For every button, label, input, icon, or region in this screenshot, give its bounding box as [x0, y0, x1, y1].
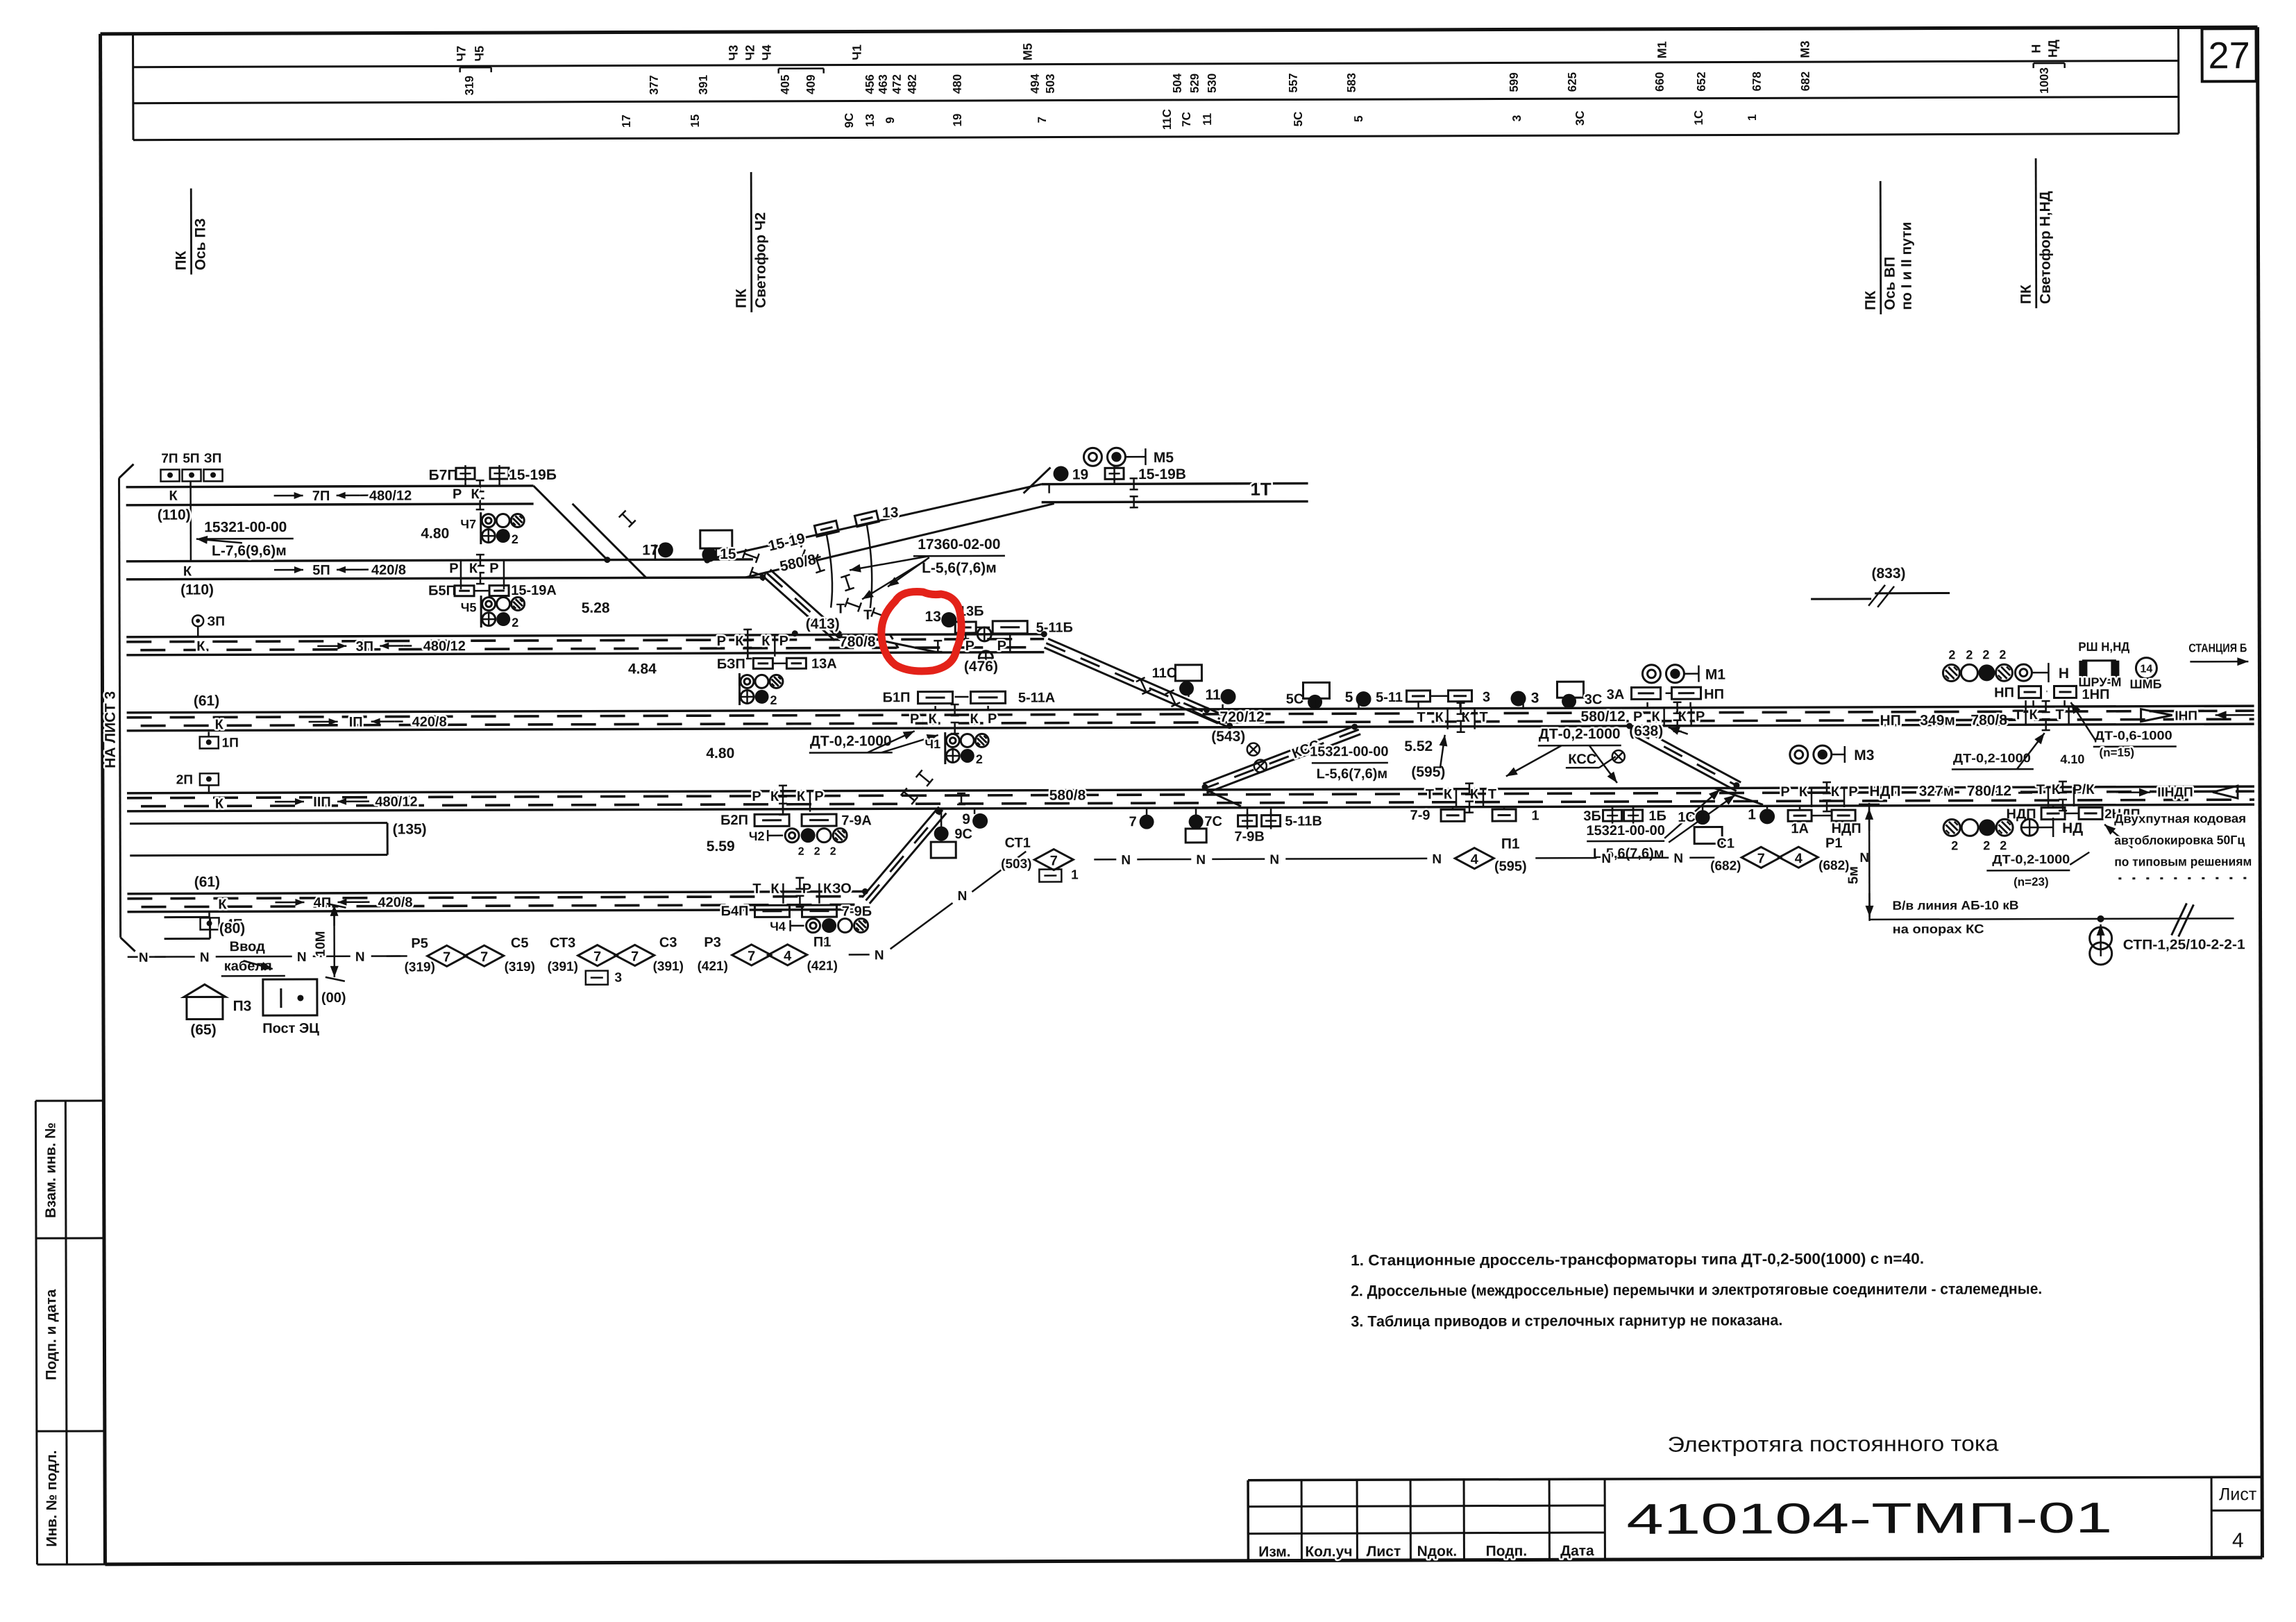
svg-text:К: К [218, 897, 227, 912]
svg-text:ЗП: ЗП [204, 451, 222, 466]
svg-text:Т: Т [836, 602, 845, 617]
svg-text:409: 409 [804, 74, 818, 94]
svg-text:15321-00-00: 15321-00-00 [1586, 823, 1665, 838]
svg-text:15: 15 [689, 115, 702, 128]
svg-text:480/12: 480/12 [423, 639, 466, 654]
svg-text:4: 4 [2232, 1529, 2244, 1552]
svg-text:2: 2 [1966, 648, 1973, 661]
svg-text:НДП: НДП [1869, 784, 1900, 800]
svg-text:N: N [1601, 852, 1611, 866]
svg-text:11: 11 [1201, 113, 1214, 126]
svg-text:480: 480 [951, 74, 964, 94]
svg-text:С3: С3 [659, 935, 677, 950]
svg-text:(682): (682) [1710, 859, 1741, 873]
svg-text:К: К [770, 789, 779, 804]
svg-text:на опорах КС: на опорах КС [1893, 922, 1984, 936]
svg-text:ДТ-0,6-1000: ДТ-0,6-1000 [2095, 729, 2172, 743]
svg-text:17: 17 [620, 115, 633, 128]
svg-text:3С: 3С [1585, 692, 1603, 707]
svg-text:5С: 5С [1286, 691, 1304, 707]
svg-text:Р: Р [453, 487, 462, 502]
svg-text:5-11: 5-11 [1376, 690, 1403, 705]
svg-text:504: 504 [1171, 73, 1184, 93]
svg-text:2: 2 [814, 846, 820, 858]
svg-text:15: 15 [720, 546, 736, 562]
svg-text:530: 530 [1206, 74, 1219, 93]
svg-text:19: 19 [1072, 466, 1088, 482]
svg-text:N: N [355, 950, 365, 965]
svg-text:(80): (80) [219, 920, 245, 936]
svg-text:КСС: КСС [1568, 752, 1596, 767]
svg-text:N: N [200, 950, 210, 965]
svg-text:480/12: 480/12 [369, 488, 412, 503]
svg-text:К: К [196, 639, 205, 654]
svg-text:1: 1 [1071, 868, 1079, 882]
svg-text:ДТ-0,2-1000: ДТ-0,2-1000 [1539, 726, 1621, 742]
svg-text:СТ1: СТ1 [1005, 836, 1031, 851]
svg-text:Электротяга постоянного тока: Электротяга постоянного тока [1667, 1431, 1999, 1457]
svg-text:(n=15): (n=15) [2099, 746, 2134, 759]
svg-text:410104-ТМП-01: 410104-ТМП-01 [1626, 1494, 2112, 1544]
svg-text:Ч3: Ч3 [727, 45, 741, 61]
svg-text:N: N [1121, 853, 1131, 868]
svg-text:(638): (638) [1629, 723, 1663, 739]
svg-text:583: 583 [1345, 73, 1358, 92]
svg-text:2: 2 [798, 846, 804, 858]
svg-text:ЗП: ЗП [207, 614, 225, 629]
svg-text:599: 599 [1508, 72, 1521, 92]
svg-text:Р: Р [717, 634, 726, 649]
svg-text:5м: 5м [1846, 866, 1861, 884]
svg-text:482: 482 [906, 74, 919, 94]
svg-text:N: N [875, 948, 884, 963]
svg-text:автоблокировка 50Гц: автоблокировка 50Гц [2114, 833, 2245, 847]
svg-text:7: 7 [1129, 814, 1137, 829]
svg-text:Т: Т [1417, 710, 1425, 725]
svg-text:Лист: Лист [1367, 1544, 1401, 1560]
svg-text:1НП: 1НП [2082, 687, 2110, 702]
svg-text:Дата: Дата [1560, 1543, 1594, 1559]
svg-text:К: К [469, 561, 478, 576]
svg-text:405: 405 [779, 75, 792, 94]
svg-text:377: 377 [648, 75, 661, 94]
svg-text:2: 2 [512, 532, 518, 546]
svg-text:(833): (833) [1871, 566, 1905, 582]
svg-text:К: К [797, 789, 806, 804]
svg-text:15-19Б: 15-19Б [509, 467, 557, 483]
svg-text:Ч5: Ч5 [461, 600, 477, 614]
svg-text:7: 7 [480, 949, 488, 965]
svg-text:15-19А: 15-19А [511, 583, 557, 598]
svg-text:П1: П1 [813, 935, 832, 950]
svg-text:2П: 2П [176, 772, 193, 787]
svg-text:Р: Р [752, 789, 761, 804]
svg-text:13: 13 [925, 609, 940, 625]
svg-text:7П: 7П [161, 452, 178, 466]
svg-text:Р: Р [988, 711, 997, 727]
svg-text:9: 9 [962, 811, 970, 827]
svg-text:Т: Т [2036, 782, 2045, 797]
svg-text:М5: М5 [1021, 43, 1035, 60]
svg-text:7-9В: 7-9В [1234, 829, 1264, 845]
svg-text:Ч5: Ч5 [473, 46, 487, 62]
svg-text:К: К [1444, 787, 1453, 802]
svg-text:2: 2 [830, 846, 836, 858]
svg-text:Т: Т [1426, 787, 1434, 802]
svg-text:420/8: 420/8 [378, 895, 412, 910]
svg-text:(319): (319) [405, 960, 435, 974]
svg-text:Н: Н [2059, 666, 2069, 682]
svg-text:(391): (391) [548, 960, 578, 974]
svg-text:ПК: ПК [174, 251, 189, 270]
svg-text:319: 319 [463, 76, 476, 95]
svg-text:780/8: 780/8 [839, 634, 876, 650]
svg-text:1С: 1С [1678, 810, 1696, 825]
svg-text:(543): (543) [1211, 729, 1245, 745]
svg-text:2: 2 [1982, 648, 1989, 661]
svg-text:580/8: 580/8 [1049, 787, 1086, 803]
svg-text:(413): (413) [806, 616, 840, 632]
svg-text:Ввод: Ввод [230, 939, 265, 954]
svg-text:К: К [928, 711, 937, 727]
svg-text:Ч7: Ч7 [460, 517, 476, 531]
svg-text:Т: Т [752, 881, 761, 897]
svg-text:ШМБ: ШМБ [2129, 677, 2161, 691]
svg-text:7-9А: 7-9А [841, 813, 871, 828]
svg-text:13: 13 [882, 505, 898, 521]
svg-text:М3: М3 [1798, 41, 1812, 58]
svg-text:4.80: 4.80 [706, 745, 734, 761]
svg-text:11С: 11С [1152, 666, 1177, 681]
svg-text:Р: Р [779, 634, 788, 649]
svg-text:349м: 349м [1920, 712, 1955, 728]
svg-text:К: К [1678, 709, 1687, 725]
svg-text:М1: М1 [1705, 667, 1726, 683]
svg-text:К: К [1435, 710, 1444, 725]
svg-text:2: 2 [1999, 648, 2006, 661]
svg-text:15-19В: 15-19В [1138, 466, 1186, 482]
svg-text:4П: 4П [314, 895, 332, 911]
svg-text:N: N [297, 950, 307, 965]
svg-text:К: К [1831, 784, 1840, 800]
svg-text:7-9Б: 7-9Б [842, 904, 872, 919]
svg-text:Р: Р [1780, 784, 1789, 800]
svg-text:7: 7 [1050, 854, 1058, 869]
svg-text:по типовым решениям: по типовым решениям [2114, 854, 2252, 869]
svg-text:М5: М5 [1154, 450, 1174, 466]
svg-text:5-11А: 5-11А [1018, 691, 1055, 706]
svg-text:3. Таблица приводов и стре: 3. Таблица приводов и стрелочных гарниту… [1351, 1311, 1782, 1330]
svg-text:11С: 11С [1160, 109, 1174, 130]
svg-text:Ось ПЗ: Ось ПЗ [192, 218, 208, 270]
svg-text:НА ЛИСТ 3: НА ЛИСТ 3 [103, 691, 119, 768]
svg-text:2: 2 [512, 616, 518, 630]
svg-text:1003: 1003 [2038, 67, 2051, 94]
svg-text:(135): (135) [393, 821, 427, 837]
svg-text:L-5,6(7,6)м: L-5,6(7,6)м [922, 560, 997, 576]
svg-text:С1: С1 [1716, 836, 1734, 851]
svg-text:494: 494 [1029, 74, 1042, 94]
svg-text:Ч1: Ч1 [925, 737, 940, 751]
svg-text:по I и II пути: по I и II пути [1898, 222, 1914, 310]
svg-text:Б4П: Б4П [721, 904, 749, 919]
svg-text:9С: 9С [843, 113, 856, 128]
svg-text:456: 456 [863, 74, 877, 94]
svg-text:10М: 10М [314, 931, 328, 956]
svg-text:391: 391 [697, 75, 710, 94]
svg-text:Подп.: Подп. [1486, 1543, 1528, 1559]
svg-text:3А: 3А [1607, 687, 1625, 702]
svg-text:660: 660 [1653, 72, 1666, 92]
svg-text:5.52: 5.52 [1404, 738, 1433, 754]
svg-text:11: 11 [1205, 687, 1221, 703]
svg-text:5С: 5С [1292, 112, 1305, 127]
svg-text:Р3: Р3 [704, 935, 721, 950]
svg-text:НД: НД [2046, 40, 2060, 58]
svg-text:В/в линия АБ-10 кВ: В/в линия АБ-10 кВ [1892, 898, 2018, 913]
svg-text:Р: Р [965, 639, 974, 654]
svg-text:(476): (476) [964, 659, 998, 675]
svg-text:L-7,6(9,6)м: L-7,6(9,6)м [212, 543, 287, 559]
svg-text:Лист: Лист [2219, 1485, 2257, 1504]
svg-text:3: 3 [1510, 115, 1523, 122]
svg-text:7С: 7С [1180, 112, 1193, 127]
svg-text:2: 2 [976, 752, 983, 766]
svg-text:НД: НД [2062, 820, 2083, 836]
svg-text:К: К [215, 796, 224, 811]
svg-text:5П: 5П [183, 451, 199, 466]
svg-text:Т: Т [2055, 707, 2063, 723]
svg-text:ПК: ПК [734, 289, 750, 308]
svg-text:4.80: 4.80 [421, 525, 449, 541]
svg-text:(65): (65) [190, 1022, 216, 1038]
svg-text:НП: НП [1704, 687, 1724, 702]
svg-text:НП: НП [1994, 685, 2014, 700]
svg-text:1: 1 [1746, 115, 1759, 121]
svg-text:7: 7 [748, 949, 755, 964]
svg-text:Р: Р [489, 561, 498, 576]
svg-text:557: 557 [1287, 73, 1300, 92]
svg-text:529: 529 [1188, 74, 1201, 93]
svg-text:С5: С5 [511, 936, 529, 951]
svg-text:Ч4: Ч4 [760, 44, 774, 60]
svg-text:НДП: НДП [1832, 821, 1862, 836]
svg-text:13А: 13А [811, 657, 837, 672]
svg-text:П3: П3 [233, 998, 252, 1014]
svg-text:К: К [2052, 782, 2061, 797]
svg-text:3: 3 [614, 971, 622, 986]
svg-text:N: N [1269, 853, 1279, 868]
svg-text:Р1: Р1 [1825, 836, 1843, 851]
svg-text:К: К [2029, 707, 2038, 723]
svg-text:780/8: 780/8 [1970, 712, 2007, 728]
svg-text:(110): (110) [180, 582, 214, 598]
svg-text:РШ Н,НД: РШ Н,НД [2078, 640, 2129, 654]
svg-text:N: N [1859, 851, 1869, 865]
svg-text:1С: 1С [1692, 110, 1705, 126]
svg-text:Р5: Р5 [411, 936, 428, 951]
svg-text:4: 4 [1795, 851, 1803, 866]
svg-text:4.10: 4.10 [2060, 752, 2084, 766]
svg-text:Р: Р [1696, 709, 1705, 725]
svg-text:(61): (61) [194, 874, 220, 890]
svg-text:(00): (00) [321, 990, 346, 1006]
svg-text:М3: М3 [1854, 747, 1874, 763]
svg-text:7П: 7П [312, 489, 330, 504]
svg-text:2: 2 [1948, 648, 1955, 661]
svg-text:1А: 1А [1791, 821, 1809, 836]
svg-text:5.28: 5.28 [582, 600, 610, 616]
svg-text:Р: Р [814, 789, 823, 804]
svg-text:580/12: 580/12 [1580, 709, 1625, 725]
svg-text:N: N [1196, 853, 1206, 868]
svg-text:N: N [958, 889, 968, 904]
svg-text:652: 652 [1695, 71, 1708, 91]
svg-text:5.59: 5.59 [707, 838, 735, 854]
svg-text:7-9: 7-9 [1410, 808, 1430, 823]
svg-text:ДТ-0,2-1000: ДТ-0,2-1000 [1992, 852, 2070, 866]
svg-text:К: К [735, 634, 744, 649]
svg-text:(391): (391) [653, 959, 684, 974]
svg-text:9С: 9С [954, 827, 972, 842]
svg-text:БЗП: БЗП [717, 657, 745, 672]
svg-text:17360-02-00: 17360-02-00 [918, 537, 1000, 552]
svg-text:К: К [761, 634, 770, 649]
svg-text:Ч4: Ч4 [770, 920, 786, 934]
svg-text:СТ3: СТ3 [550, 936, 575, 951]
svg-text:N: N [1432, 852, 1442, 867]
svg-text:П1: П1 [1501, 836, 1520, 852]
svg-text:7: 7 [631, 949, 639, 964]
svg-text:4: 4 [1471, 852, 1479, 868]
svg-text:5: 5 [1345, 689, 1353, 705]
svg-text:480/12: 480/12 [375, 794, 417, 809]
svg-text:472: 472 [890, 74, 904, 94]
svg-text:2: 2 [1951, 838, 1958, 852]
svg-text:327м: 327м [1919, 783, 1955, 799]
svg-text:Р: Р [449, 561, 458, 576]
svg-text:Кол.уч: Кол.уч [1305, 1544, 1352, 1560]
svg-text:7: 7 [443, 949, 450, 965]
svg-text:Т: Т [1479, 710, 1487, 725]
svg-text:К: К [770, 881, 779, 897]
svg-text:27: 27 [2209, 35, 2250, 76]
svg-text:(n=23): (n=23) [2014, 875, 2049, 888]
svg-text:14: 14 [2140, 664, 2152, 675]
svg-text:Ч1: Ч1 [850, 44, 864, 60]
svg-text:Т: Т [2014, 707, 2022, 723]
svg-text:1: 1 [1531, 808, 1539, 823]
svg-text:3: 3 [1531, 690, 1539, 706]
svg-text:СТП-1,25/10-2-2-1: СТП-1,25/10-2-2-1 [2123, 937, 2245, 953]
svg-text:503: 503 [1044, 74, 1057, 93]
svg-text:4.84: 4.84 [628, 661, 657, 677]
svg-text:К: К [169, 489, 178, 504]
svg-text:Инв. № подл.: Инв. № подл. [44, 1450, 60, 1546]
svg-text:Б7П: Б7П [429, 467, 458, 483]
svg-text:(682): (682) [1818, 859, 1849, 873]
svg-text:ШРУ-М: ШРУ-М [2078, 675, 2121, 689]
svg-text:1Б: 1Б [1648, 809, 1666, 824]
svg-text:Подп. и дата: Подп. и дата [43, 1289, 59, 1380]
svg-text:НП: НП [1880, 713, 1900, 729]
svg-text:Т: Т [1488, 787, 1496, 802]
svg-text:Р: Р [1633, 709, 1642, 725]
svg-text:Т: Т [863, 607, 872, 623]
svg-text:13: 13 [863, 114, 877, 127]
svg-text:Р: Р [1848, 784, 1857, 800]
svg-text:(595): (595) [1494, 859, 1527, 874]
svg-text:Б5П: Б5П [428, 583, 456, 598]
svg-text:Взам. инв. №: Взам. инв. № [42, 1122, 58, 1218]
svg-text:15321-00-00: 15321-00-00 [1310, 744, 1389, 759]
svg-text:3: 3 [1483, 690, 1490, 705]
svg-text:Ч2: Ч2 [743, 45, 757, 61]
svg-text:К: К [1651, 709, 1660, 725]
svg-text:3П: 3П [356, 639, 374, 654]
svg-text:Б1П: Б1П [883, 690, 911, 705]
svg-text:К: К [183, 564, 192, 579]
svg-text:15321-00-00: 15321-00-00 [204, 519, 287, 535]
svg-text:7С: 7С [1204, 814, 1222, 829]
svg-text:682: 682 [1799, 71, 1812, 91]
svg-text:Пост ЭЦ: Пост ЭЦ [262, 1021, 319, 1036]
svg-text:678: 678 [1750, 71, 1764, 91]
svg-text:К: К [1799, 784, 1808, 800]
svg-text:IНП: IНП [2175, 709, 2197, 723]
svg-text:Ч2: Ч2 [749, 829, 765, 843]
svg-text:Р/К: Р/К [2073, 782, 2095, 797]
svg-text:3С: 3С [1573, 110, 1587, 126]
svg-text:420/8: 420/8 [412, 714, 447, 729]
svg-text:IП: IП [349, 715, 363, 730]
svg-text:ДТ-0,2-1000: ДТ-0,2-1000 [1953, 751, 2031, 765]
svg-text:780/12: 780/12 [1967, 783, 2011, 799]
svg-text:3Б: 3Б [1583, 809, 1601, 824]
svg-text:КЗО: КЗО [823, 881, 852, 896]
svg-text:2: 2 [2000, 838, 2007, 852]
svg-text:Светофор Ч2: Светофор Ч2 [752, 212, 768, 308]
svg-text:L-5,6(7,6)м: L-5,6(7,6)м [1317, 766, 1388, 782]
svg-text:5: 5 [1352, 115, 1365, 122]
svg-text:625: 625 [1566, 72, 1579, 92]
svg-text:Изм.: Изм. [1258, 1544, 1290, 1560]
svg-text:К: К [215, 717, 224, 732]
svg-text:(503): (503) [1001, 857, 1031, 872]
svg-text:Nдок.: Nдок. [1417, 1544, 1458, 1560]
svg-text:Н: Н [2029, 44, 2043, 53]
svg-text:(319): (319) [505, 960, 535, 974]
svg-text:М1: М1 [1655, 41, 1669, 58]
svg-text:(421): (421) [698, 959, 728, 974]
svg-text:1: 1 [1748, 806, 1756, 822]
svg-text:К: К [970, 711, 979, 727]
svg-text:К: К [471, 487, 480, 502]
svg-text:7: 7 [1757, 851, 1765, 866]
svg-text:720/12: 720/12 [1219, 709, 1264, 725]
svg-text:2: 2 [1983, 838, 1990, 852]
svg-text:Двухпутная кодовая: Двухпутная кодовая [2114, 811, 2246, 826]
svg-text:Р: Р [910, 711, 919, 727]
svg-text:N: N [1673, 852, 1683, 866]
svg-text:9: 9 [884, 117, 897, 124]
svg-text:Светофор Н,НД: Светофор Н,НД [2037, 191, 2054, 304]
svg-text:К: К [1461, 710, 1470, 725]
svg-text:(110): (110) [158, 507, 191, 523]
svg-text:2: 2 [770, 693, 777, 707]
svg-text:7: 7 [593, 949, 601, 965]
svg-text:СТАНЦИЯ Б: СТАНЦИЯ Б [2188, 641, 2247, 654]
